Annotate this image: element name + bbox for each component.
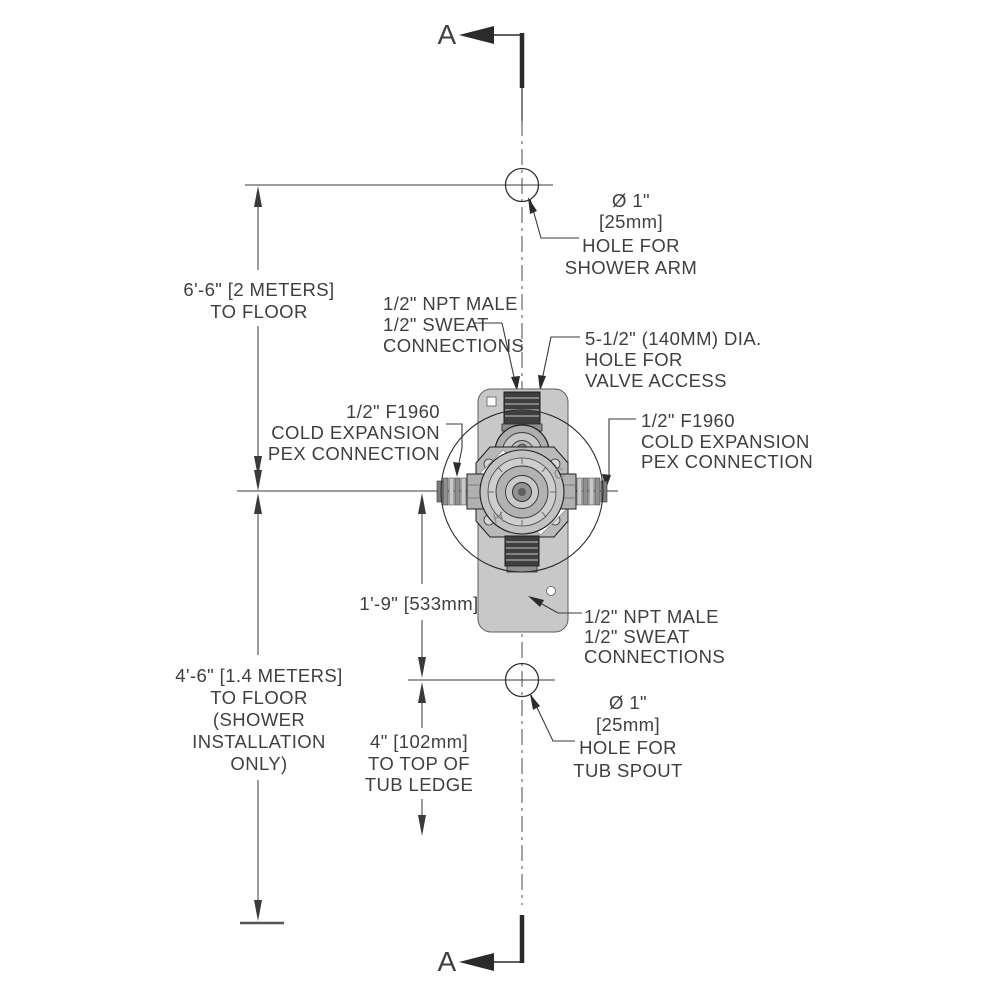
- valve-access-label-line3: VALVE ACCESS: [585, 370, 727, 391]
- tub-spout-hole-label-line2: [25mm]: [596, 714, 660, 735]
- pex-left-leader: [446, 424, 462, 477]
- npt-top-label-line1: 1/2" NPT MALE: [383, 293, 518, 314]
- pex-left-label-line2: COLD EXPANSION: [271, 422, 440, 443]
- dim-shower-arm-to-floor: [254, 186, 262, 491]
- dim-valve-height-line1: 4'-6" [1.4 METERS]: [175, 665, 342, 686]
- shower-arm-hole-label-line4: SHOWER ARM: [565, 257, 697, 278]
- barb-end-cap: [601, 481, 607, 502]
- dim-shower-arm-height-line1: 6'-6" [2 METERS]: [183, 279, 334, 300]
- leader-arrowhead-icon: [453, 462, 461, 477]
- pex-right-label-line2: COLD EXPANSION: [641, 431, 810, 452]
- leader-arrowhead-icon: [530, 694, 540, 710]
- tub-spout-hole-label-line3: HOLE FOR: [579, 737, 677, 758]
- pex-right-label-line3: PEX CONNECTION: [641, 451, 813, 472]
- thread-body: [505, 536, 539, 566]
- shower-arm-hole-label-line3: HOLE FOR: [582, 235, 680, 256]
- valve-access-label-line1: 5-1/2" (140MM) DIA.: [585, 328, 762, 349]
- section-cut-top: A: [437, 19, 522, 121]
- dim-valve-height-line2: TO FLOOR: [210, 687, 307, 708]
- valve-access-leader: [538, 337, 580, 391]
- section-cut-bottom: A: [437, 915, 522, 977]
- tub-spout-leader: [530, 694, 575, 741]
- dim-spout-to-ledge-line2: TO TOP OF: [368, 753, 470, 774]
- dim-shower-arm-height-line2: TO FLOOR: [210, 301, 307, 322]
- barb-rib: [449, 478, 454, 505]
- shower-arm-leader: [528, 197, 579, 238]
- section-marker-top: A: [437, 19, 456, 50]
- pex-left-label-line1: 1/2" F1960: [346, 401, 440, 422]
- dim-valve-height-line3: (SHOWER: [213, 709, 305, 730]
- cartridge-center: [518, 488, 526, 496]
- leader-line: [609, 419, 636, 480]
- dim-arrow-down-icon: [254, 470, 262, 491]
- pex-right-leader: [602, 419, 636, 489]
- bracket-screw-hole-top: [487, 397, 496, 406]
- barb-rib: [461, 478, 466, 505]
- dim-arrow-down-icon: [418, 657, 426, 678]
- leader-line: [531, 695, 575, 741]
- tub-spout-hole-label-line1: Ø 1": [609, 692, 647, 713]
- barb-rib: [443, 478, 448, 505]
- dim-valve-height-line5: ONLY): [230, 753, 287, 774]
- leader-line: [541, 337, 580, 385]
- dim-arrow-down-icon: [254, 900, 262, 921]
- npt-top-label-line3: CONNECTIONS: [383, 335, 524, 356]
- npt-bottom-label-line3: CONNECTIONS: [584, 646, 725, 667]
- npt-bottom-label-line2: 1/2" SWEAT: [584, 626, 690, 647]
- dim-valve-height-line4: INSTALLATION: [192, 731, 326, 752]
- barb-rib: [595, 478, 600, 505]
- shower-arm-hole-label-line2: [25mm]: [599, 211, 663, 232]
- dim-spout-to-ledge-line1: 4" [102mm]: [370, 731, 468, 752]
- pex-right-label-line1: 1/2" F1960: [641, 410, 735, 431]
- thread-body: [504, 392, 540, 425]
- dim-spout-to-ledge-line3: TUB LEDGE: [365, 774, 473, 795]
- npt-bottom-label-line1: 1/2" NPT MALE: [584, 606, 719, 627]
- section-marker-bottom: A: [437, 946, 456, 977]
- dim-valve-to-floor: [240, 493, 284, 923]
- barb-rib: [589, 478, 594, 505]
- leader-line: [530, 199, 579, 238]
- section-arrowhead-icon: [459, 953, 494, 971]
- barb-rib: [455, 478, 460, 505]
- bracket-screw-hole-bottom: [547, 587, 556, 596]
- barb-rib: [583, 478, 588, 505]
- barb-rib: [577, 478, 582, 505]
- barb-end-cap: [437, 481, 443, 502]
- dim-valve-to-spout: [418, 493, 426, 678]
- bottom-threaded-connection: [505, 536, 539, 572]
- tub-spout-hole-label-line4: TUB SPOUT: [573, 760, 682, 781]
- shower-arm-hole-label-line1: Ø 1": [612, 190, 650, 211]
- valve-access-label-line2: HOLE FOR: [585, 349, 683, 370]
- dim-valve-to-spout-text: 1'-9" [533mm]: [359, 593, 478, 614]
- pex-left-label-line3: PEX CONNECTION: [268, 443, 440, 464]
- dim-arrow-down-icon: [418, 815, 426, 836]
- leader-arrowhead-icon: [528, 197, 537, 214]
- drawing-svg: A A 6'-6" [2 METERS] TO FLOOR 4'-6" [1.4…: [0, 0, 1000, 1000]
- section-arrowhead-icon: [459, 26, 494, 44]
- installation-drawing: A A 6'-6" [2 METERS] TO FLOOR 4'-6" [1.4…: [0, 0, 1000, 1000]
- npt-top-label-line2: 1/2" SWEAT: [383, 314, 489, 335]
